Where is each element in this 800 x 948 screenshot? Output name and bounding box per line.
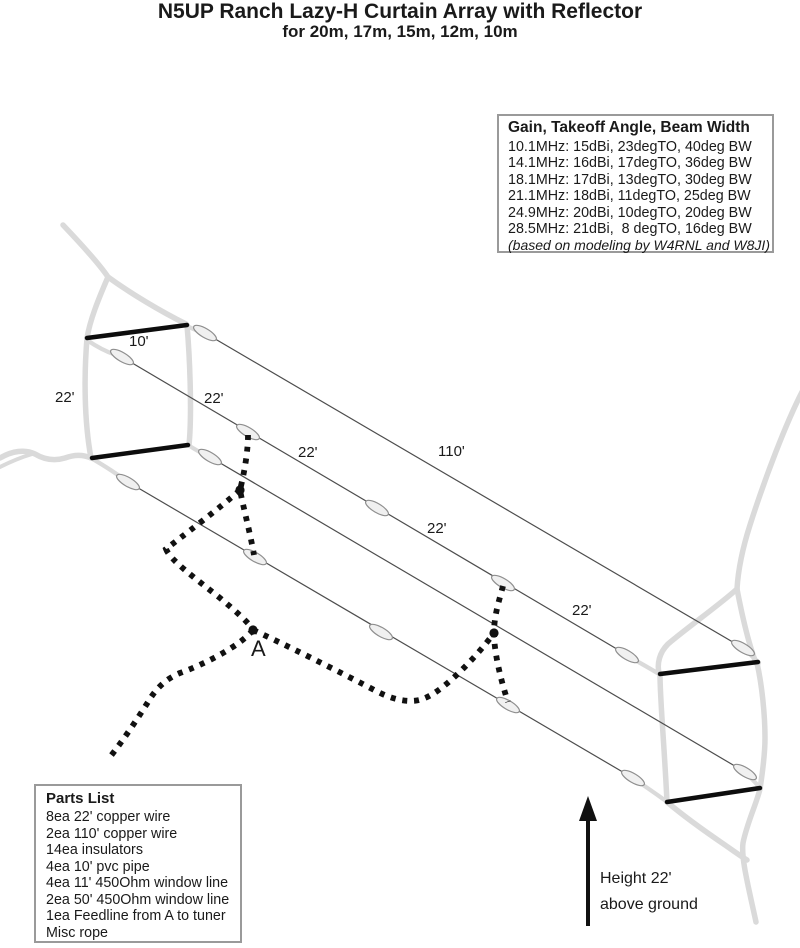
pipe-upper-right — [660, 662, 758, 674]
gain-row: 10.1MHz: 15dBi, 23degTO, 40deg BW — [508, 139, 764, 155]
label-segment-2: 22' — [298, 444, 318, 461]
feedline-dotted — [110, 435, 508, 757]
parts-item: 14ea insulators — [46, 842, 234, 859]
phasing-line-left — [166, 490, 253, 630]
label-feed-point-A: A — [251, 636, 266, 662]
tree-left-drop-right — [187, 325, 190, 445]
label-spreader-length: 10' — [129, 333, 149, 350]
insulator — [192, 323, 219, 344]
height-arrow — [579, 796, 597, 926]
reflector-wire-top — [205, 333, 743, 648]
pipe-lower-left — [92, 445, 188, 458]
tree-left-fork — [87, 277, 108, 338]
insulator — [368, 622, 395, 643]
height-note: Height 22' above ground — [600, 866, 698, 918]
gain-box-title: Gain, Takeoff Angle, Beam Width — [508, 119, 764, 137]
parts-item: 4ea 11' 450Ohm window line — [46, 875, 234, 892]
tree-right-trunk-bottom — [743, 789, 760, 922]
tree-left-drop-left — [85, 338, 91, 458]
feed-junctions — [235, 485, 498, 637]
parts-item: 8ea 22' copper wire — [46, 809, 234, 826]
parts-item: 4ea 10' pvc pipe — [46, 859, 234, 876]
page-subtitle: for 20m, 17m, 15m, 12m, 10m — [0, 22, 800, 42]
height-note-line2: above ground — [600, 892, 698, 918]
height-note-line1: Height 22' — [600, 866, 698, 892]
gain-row: 24.9MHz: 20dBi, 10degTO, 20deg BW — [508, 205, 764, 221]
label-segment-4: 22' — [572, 602, 592, 619]
label-segment-3: 22' — [427, 520, 447, 537]
parts-item: 1ea Feedline from A to tuner — [46, 908, 234, 925]
reflector-wire-bottom — [210, 457, 745, 772]
gain-box-footnote: (based on modeling by W4RNL and W8JI) — [508, 237, 764, 254]
gain-row: 14.1MHz: 16dBi, 17degTO, 36deg BW — [508, 155, 764, 171]
label-segment-1: 22' — [204, 390, 224, 407]
tree-right-fork — [658, 589, 737, 673]
pipe-lower-right — [667, 788, 760, 802]
label-left-height: 22' — [55, 389, 75, 406]
junction-dot — [489, 628, 498, 637]
gain-box: Gain, Takeoff Angle, Beam Width 10.1MHz:… — [497, 114, 774, 253]
parts-list-box: Parts List 8ea 22' copper wire 2ea 110' … — [34, 784, 242, 943]
tree-right-edge — [757, 663, 765, 789]
insulator — [115, 472, 142, 493]
tree-right-drop-left — [660, 674, 667, 802]
phasing-line-right — [253, 630, 494, 701]
parts-item: 2ea 50' 450Ohm window line — [46, 892, 234, 909]
height-arrow-head — [579, 796, 597, 821]
gain-row: 18.1MHz: 17dBi, 13degTO, 30deg BW — [508, 172, 764, 188]
ground-rope-left — [0, 451, 91, 459]
feed-point-A-dot — [248, 625, 257, 634]
insulator — [620, 768, 647, 789]
insulator — [242, 547, 269, 568]
tree-right-lower-tie — [667, 802, 747, 860]
tree-right-trunk-top — [737, 392, 800, 589]
parts-item: Misc rope — [46, 925, 234, 942]
insulator — [614, 645, 641, 666]
label-reflector-length: 110' — [438, 443, 465, 460]
vertical-feeder-1 — [240, 435, 254, 555]
diagram-page: N5UP Ranch Lazy-H Curtain Array with Ref… — [0, 0, 800, 948]
insulator — [364, 498, 391, 519]
tree-left-branch — [63, 225, 186, 324]
junction-dot — [235, 485, 244, 494]
gain-row: 28.5MHz: 21dBi, 8 degTO, 16deg BW — [508, 221, 764, 237]
insulator — [197, 447, 224, 468]
gain-row: 21.1MHz: 18dBi, 11degTO, 25deg BW — [508, 188, 764, 204]
feedline-to-tuner — [110, 630, 253, 757]
parts-item: 2ea 110' copper wire — [46, 826, 234, 843]
vertical-feeder-2 — [494, 586, 508, 702]
insulator — [495, 695, 522, 716]
parts-list-title: Parts List — [46, 790, 234, 807]
insulator — [732, 762, 759, 783]
page-title: N5UP Ranch Lazy-H Curtain Array with Ref… — [0, 0, 800, 24]
